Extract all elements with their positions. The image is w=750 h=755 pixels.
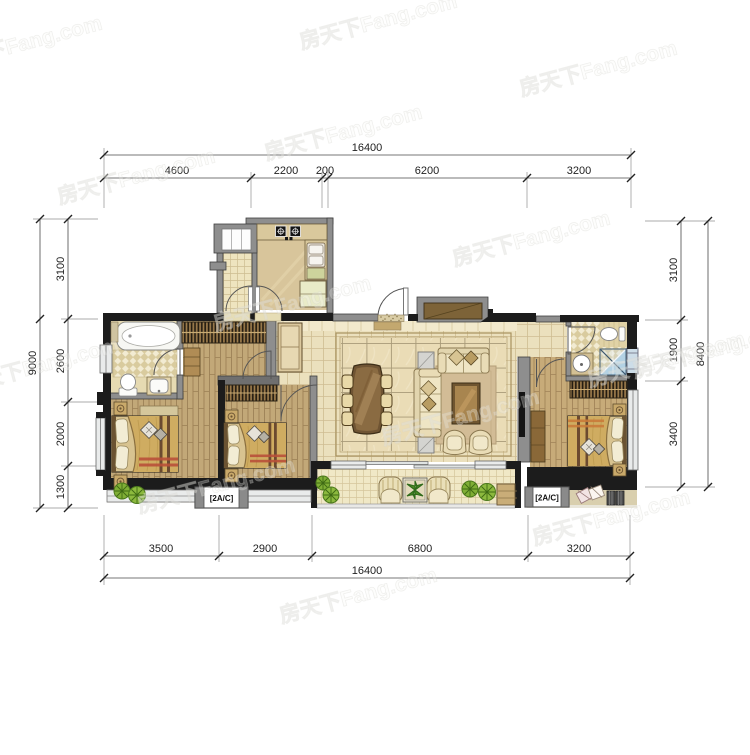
svg-text:200: 200	[316, 165, 334, 177]
svg-text:3100: 3100	[55, 257, 67, 281]
svg-text:16400: 16400	[352, 142, 383, 154]
svg-text:3200: 3200	[567, 165, 591, 177]
svg-text:3100: 3100	[668, 258, 680, 282]
svg-text:2000: 2000	[55, 422, 67, 446]
svg-text:1300: 1300	[55, 475, 67, 499]
svg-text:[2A/C]: [2A/C]	[535, 494, 559, 503]
svg-text:2200: 2200	[274, 165, 298, 177]
svg-text:6800: 6800	[408, 543, 432, 555]
svg-text:3200: 3200	[567, 543, 591, 555]
svg-text:6200: 6200	[415, 165, 439, 177]
svg-text:16400: 16400	[352, 565, 383, 577]
svg-text:3500: 3500	[149, 543, 173, 555]
svg-text:3400: 3400	[668, 422, 680, 446]
svg-text:2900: 2900	[253, 543, 277, 555]
